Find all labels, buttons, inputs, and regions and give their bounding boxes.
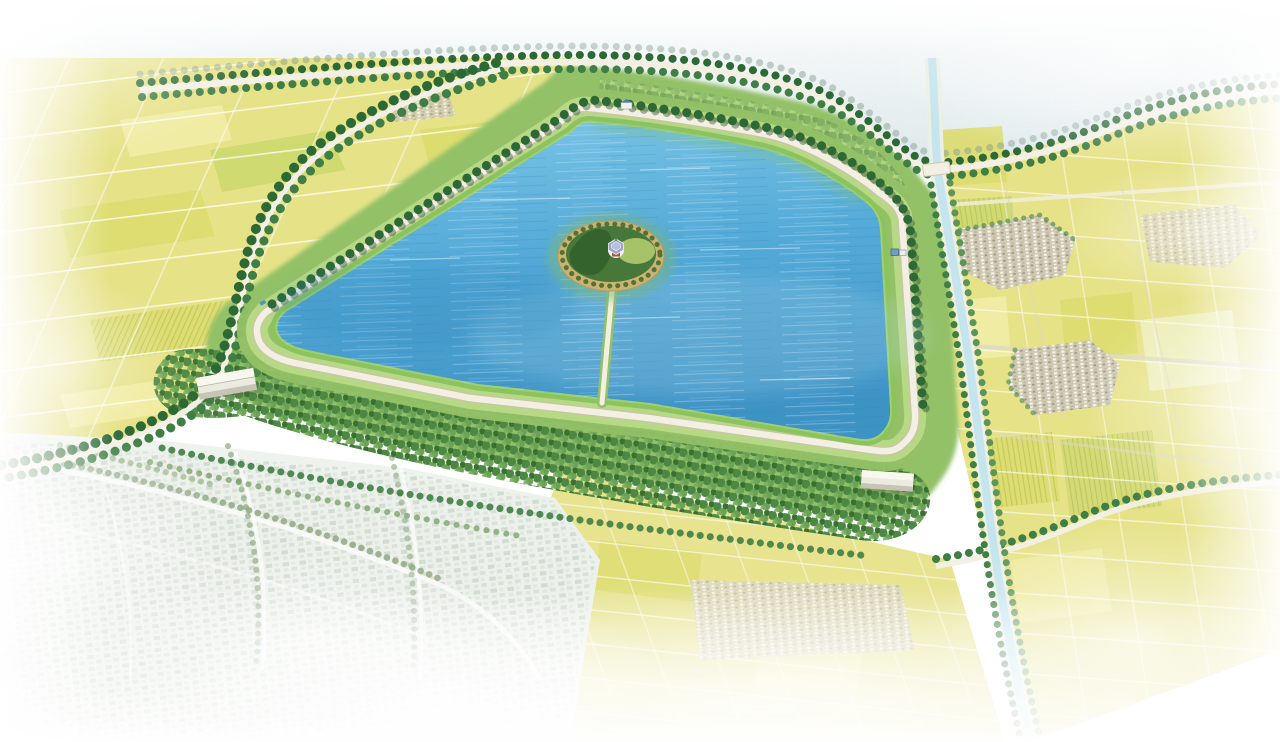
aerial-rendering bbox=[0, 0, 1280, 742]
sluice-gate bbox=[891, 249, 906, 256]
rendering-canvas bbox=[0, 0, 1280, 742]
pavilion-finial bbox=[615, 239, 617, 241]
canal-bridge bbox=[922, 161, 950, 176]
service-building-south bbox=[860, 470, 915, 496]
